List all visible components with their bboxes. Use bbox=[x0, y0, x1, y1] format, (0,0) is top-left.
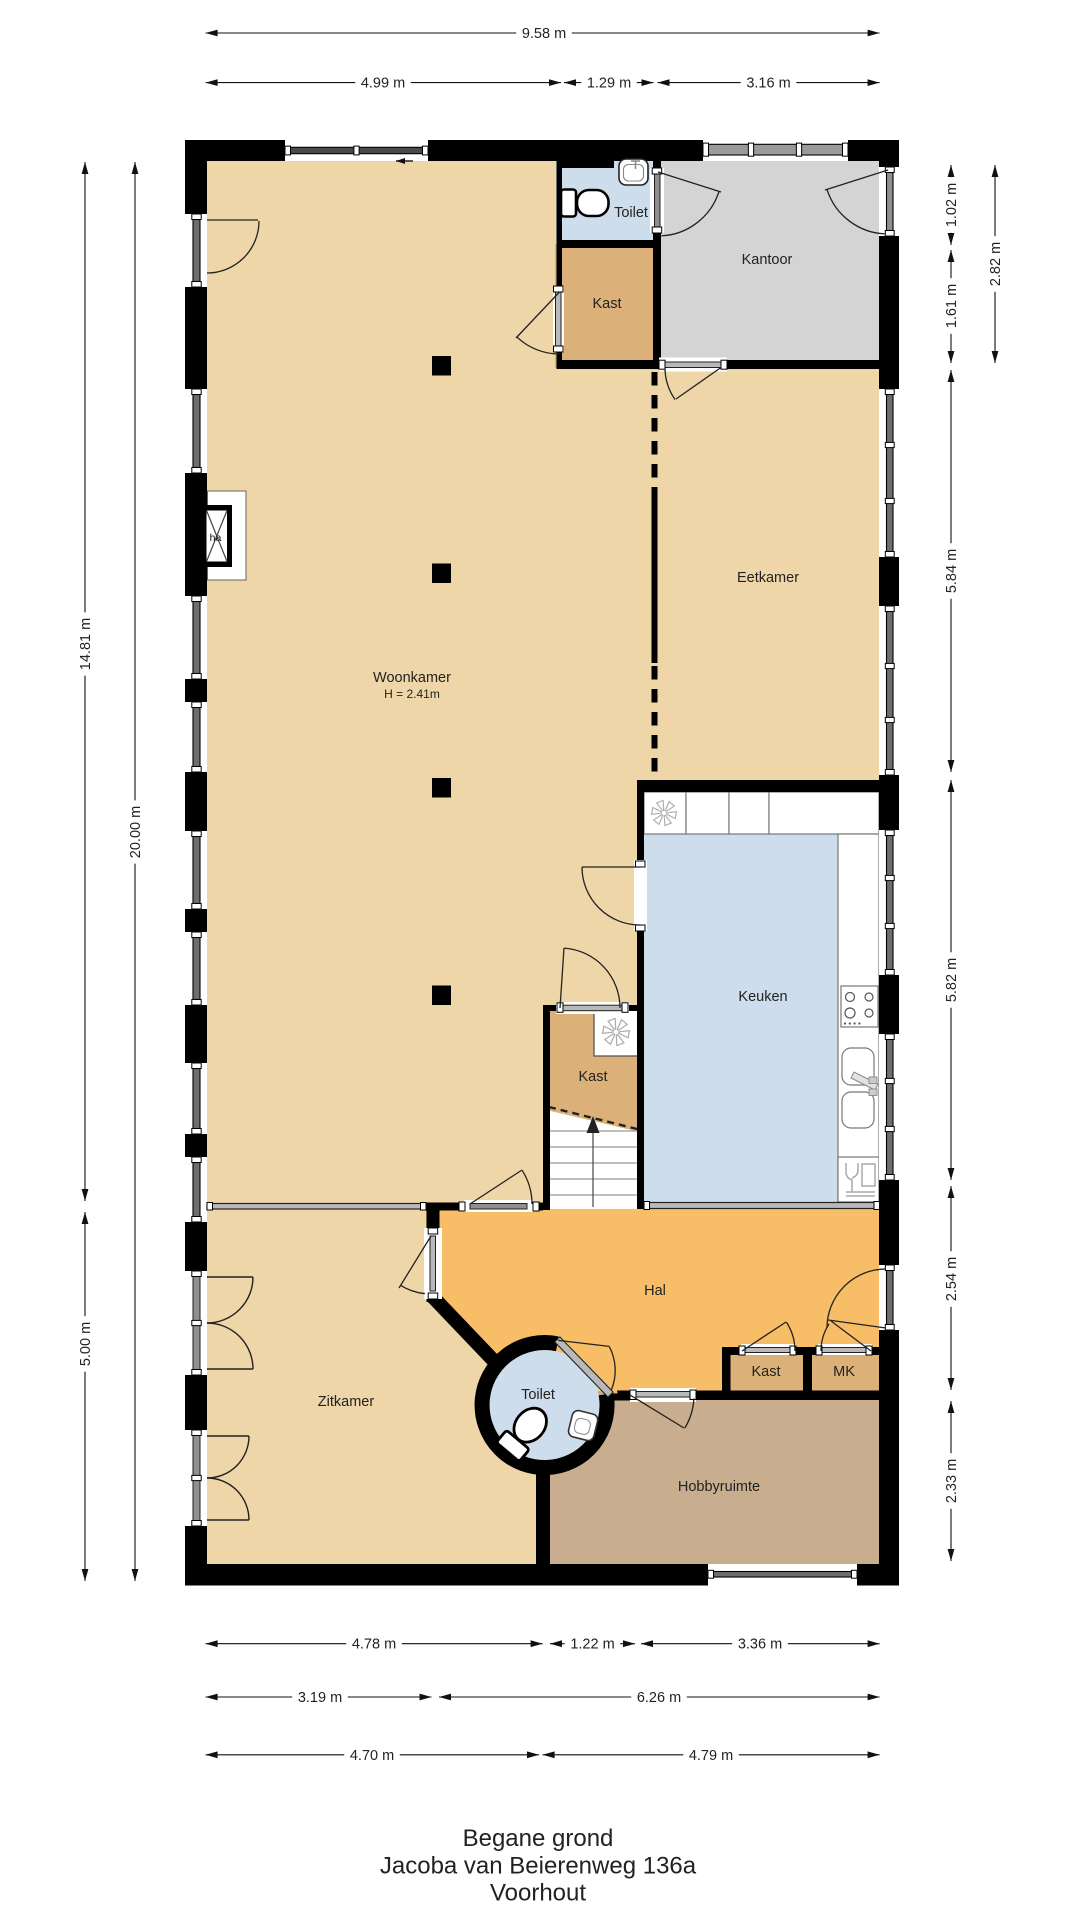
svg-text:Keuken: Keuken bbox=[738, 989, 787, 1005]
svg-text:5.84 m: 5.84 m bbox=[944, 549, 960, 593]
svg-text:Kast: Kast bbox=[592, 296, 621, 312]
svg-text:Hal: Hal bbox=[644, 1283, 666, 1299]
svg-text:3.16 m: 3.16 m bbox=[746, 76, 790, 92]
svg-text:1.61 m: 1.61 m bbox=[944, 284, 960, 328]
svg-text:2.54 m: 2.54 m bbox=[944, 1257, 960, 1301]
svg-text:H = 2.41m: H = 2.41m bbox=[384, 687, 440, 701]
svg-text:Kast: Kast bbox=[751, 1364, 780, 1380]
svg-text:3.19 m: 3.19 m bbox=[298, 1690, 342, 1706]
svg-text:5.82 m: 5.82 m bbox=[944, 958, 960, 1002]
svg-text:Voorhout: Voorhout bbox=[490, 1880, 586, 1907]
svg-text:1.02 m: 1.02 m bbox=[944, 183, 960, 227]
svg-text:2.33 m: 2.33 m bbox=[944, 1459, 960, 1503]
svg-text:Kast: Kast bbox=[578, 1069, 607, 1085]
svg-text:Toilet: Toilet bbox=[614, 205, 648, 221]
svg-text:2.82 m: 2.82 m bbox=[988, 242, 1004, 286]
svg-text:Kantoor: Kantoor bbox=[742, 252, 793, 268]
svg-text:4.78 m: 4.78 m bbox=[352, 1637, 396, 1653]
svg-text:4.79 m: 4.79 m bbox=[689, 1748, 733, 1764]
svg-text:1.29 m: 1.29 m bbox=[587, 76, 631, 92]
svg-text:Begane grond: Begane grond bbox=[463, 1825, 614, 1852]
svg-text:4.99 m: 4.99 m bbox=[361, 76, 405, 92]
svg-text:ha: ha bbox=[210, 532, 222, 544]
svg-text:20.00 m: 20.00 m bbox=[128, 806, 144, 858]
svg-text:Woonkamer: Woonkamer bbox=[373, 670, 451, 686]
svg-text:Hobbyruimte: Hobbyruimte bbox=[678, 1479, 760, 1495]
svg-text:9.58 m: 9.58 m bbox=[522, 26, 566, 42]
svg-text:Jacoba van Beierenweg 136a: Jacoba van Beierenweg 136a bbox=[380, 1853, 697, 1880]
svg-text:Eetkamer: Eetkamer bbox=[737, 570, 799, 586]
svg-text:Zitkamer: Zitkamer bbox=[318, 1394, 375, 1410]
svg-text:14.81 m: 14.81 m bbox=[78, 618, 94, 670]
svg-text:1.22 m: 1.22 m bbox=[570, 1637, 614, 1653]
svg-text:6.26 m: 6.26 m bbox=[637, 1690, 681, 1706]
svg-text:3.36 m: 3.36 m bbox=[738, 1637, 782, 1653]
svg-text:Toilet: Toilet bbox=[521, 1387, 555, 1403]
svg-text:MK: MK bbox=[833, 1364, 855, 1380]
svg-text:4.70 m: 4.70 m bbox=[350, 1748, 394, 1764]
svg-text:5.00 m: 5.00 m bbox=[78, 1322, 94, 1366]
